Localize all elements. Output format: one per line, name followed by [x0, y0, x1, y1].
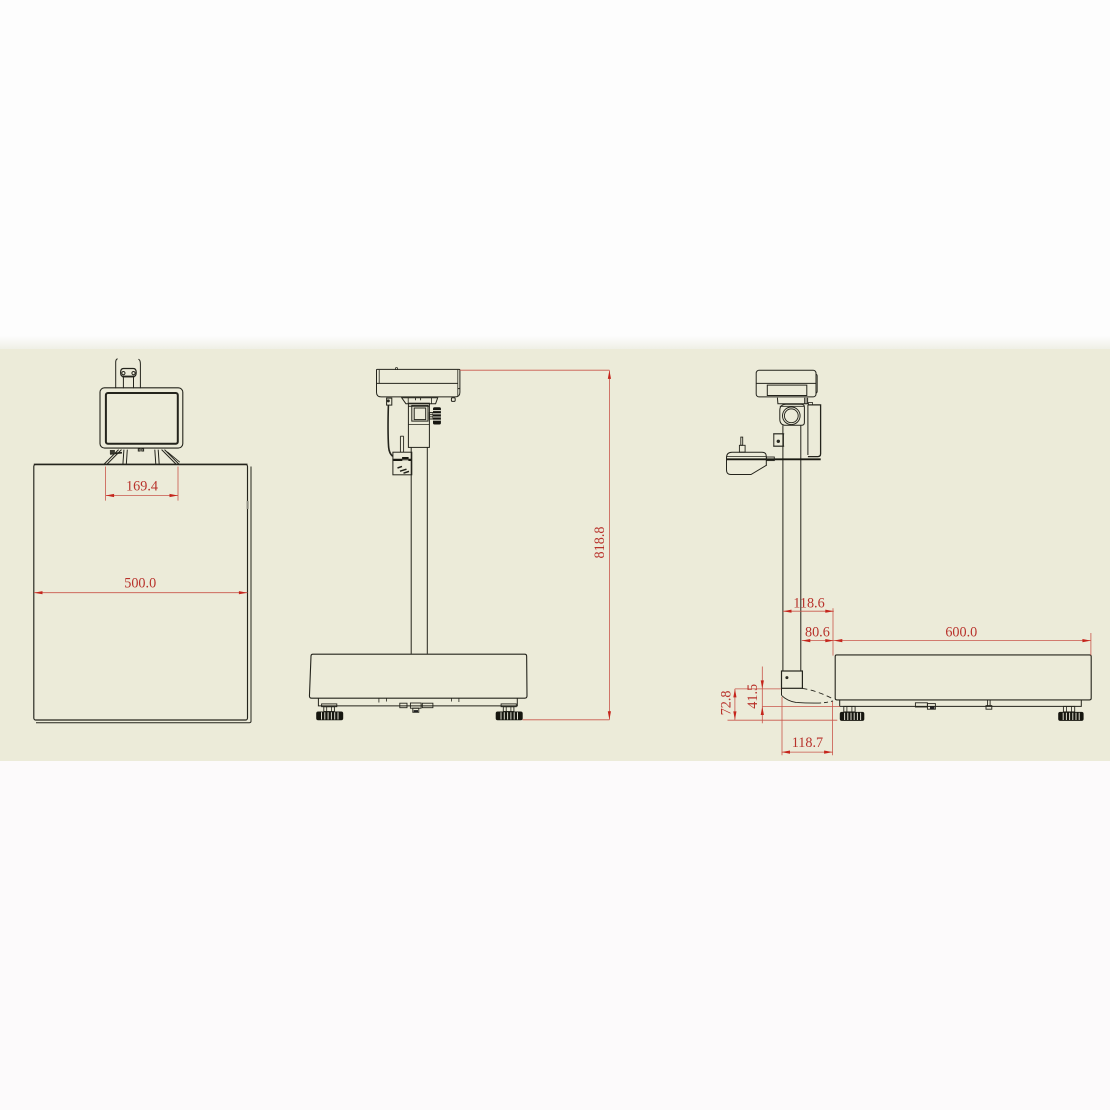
svg-text:118.7: 118.7	[792, 735, 823, 751]
svg-text:818.8: 818.8	[592, 527, 608, 559]
svg-text:80.6: 80.6	[805, 624, 830, 640]
svg-text:500.0: 500.0	[124, 576, 156, 592]
svg-text:72.8: 72.8	[718, 690, 734, 715]
svg-text:600.0: 600.0	[945, 625, 977, 641]
svg-text:169.4: 169.4	[126, 478, 158, 494]
svg-text:41.5: 41.5	[745, 684, 761, 709]
svg-text:118.6: 118.6	[793, 595, 824, 611]
